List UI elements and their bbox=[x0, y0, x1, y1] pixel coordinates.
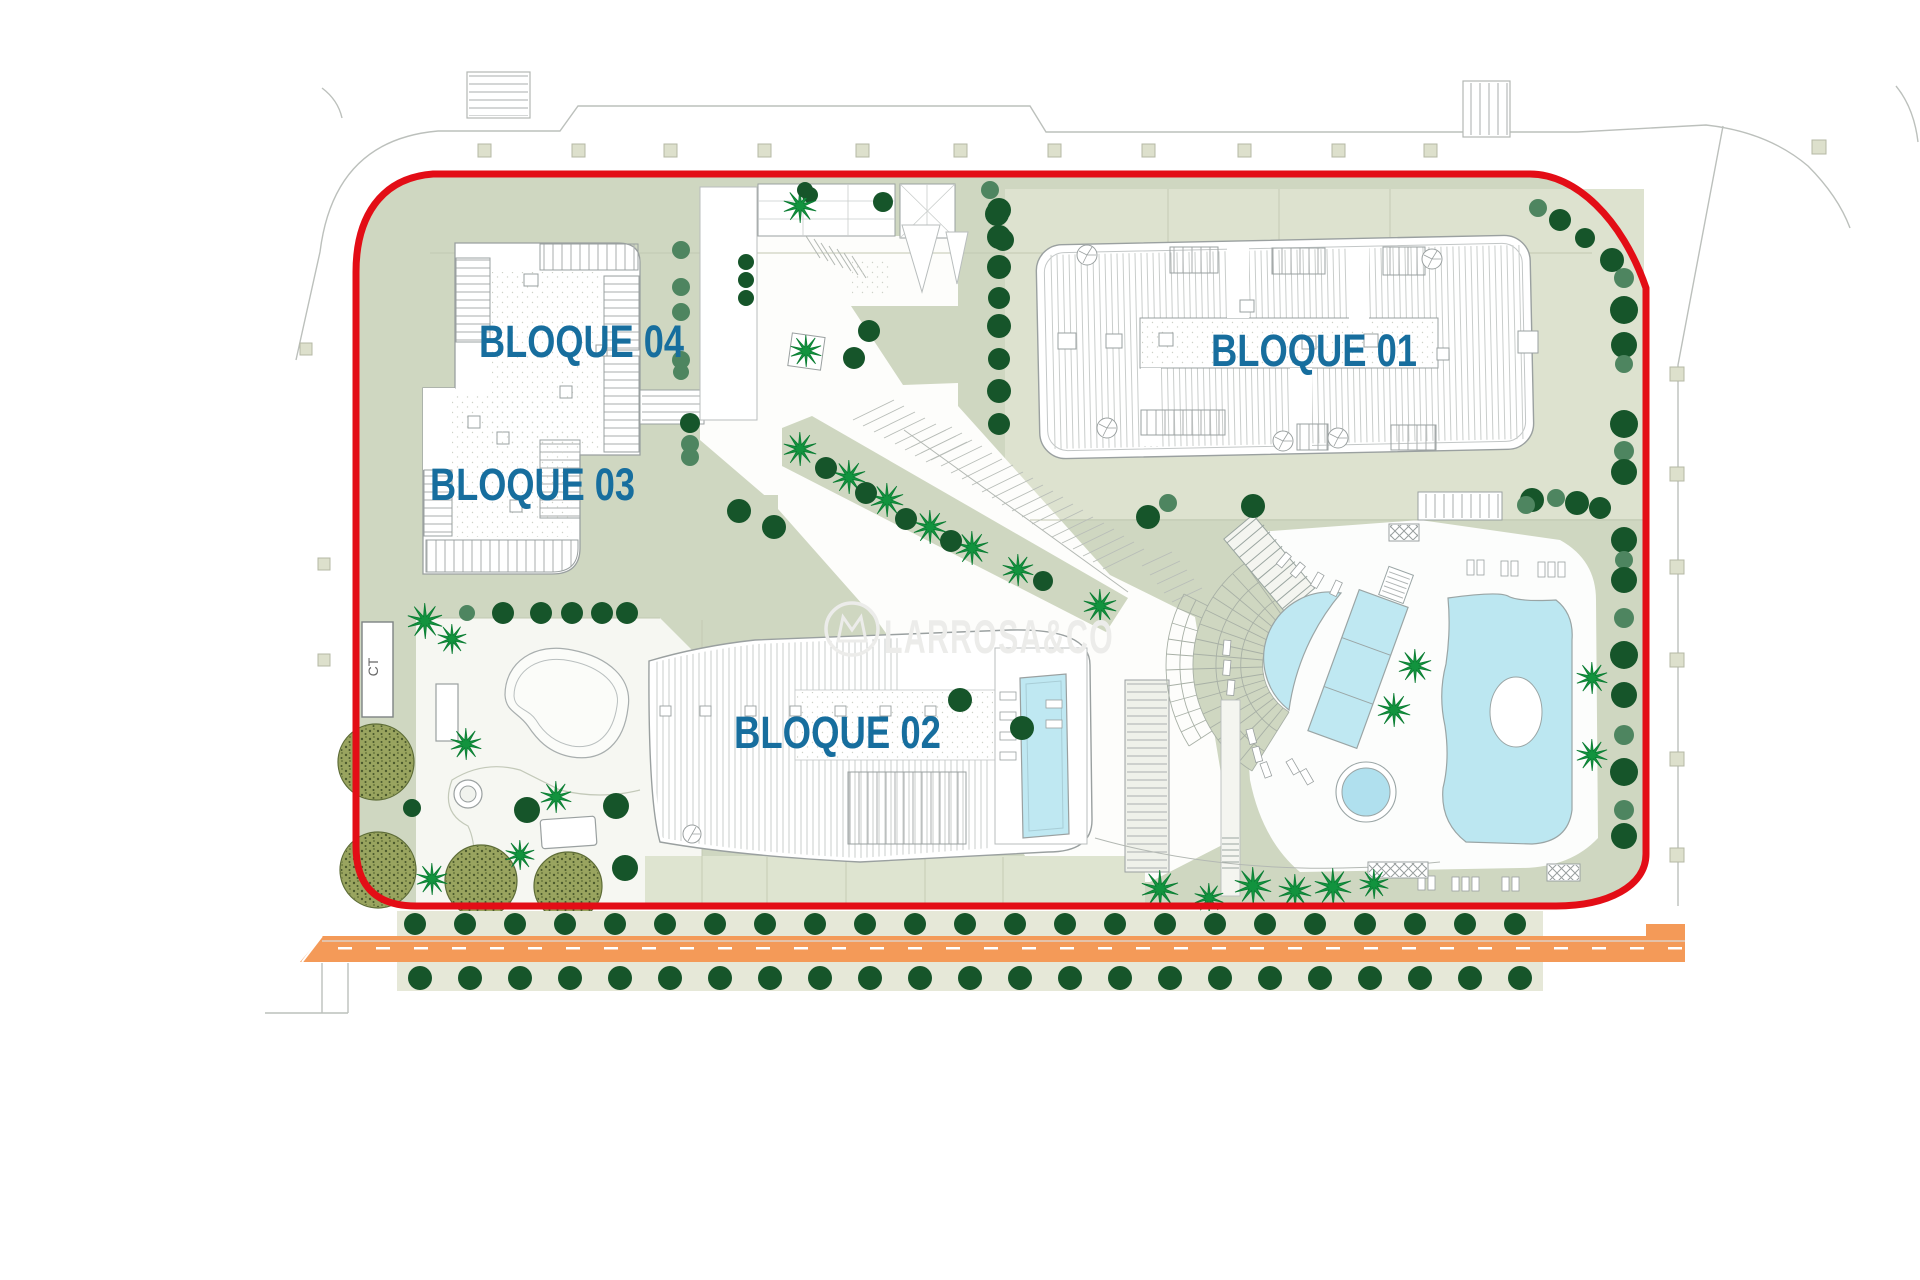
svg-text:CT: CT bbox=[365, 657, 381, 676]
svg-text:LARROSA&CO: LARROSA&CO bbox=[884, 610, 1114, 663]
svg-text:BLOQUE 04: BLOQUE 04 bbox=[479, 316, 684, 367]
svg-text:BLOQUE 01: BLOQUE 01 bbox=[1211, 325, 1417, 376]
svg-text:BLOQUE 03: BLOQUE 03 bbox=[430, 459, 635, 510]
svg-text:BLOQUE 02: BLOQUE 02 bbox=[734, 707, 941, 758]
